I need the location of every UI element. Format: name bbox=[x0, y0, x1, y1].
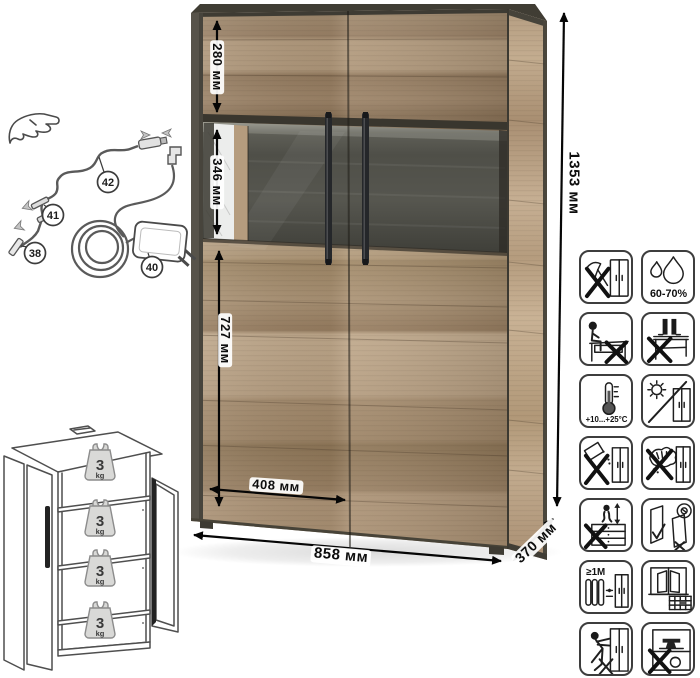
svg-text:kg: kg bbox=[96, 629, 105, 638]
shelf-weight-2: 3 kg bbox=[85, 500, 115, 536]
shelf-weight-4: 3 kg bbox=[85, 602, 115, 638]
svg-text:40: 40 bbox=[146, 262, 158, 274]
led-kit-illustration: 42 41 38 40 bbox=[0, 95, 200, 295]
shelf-weight-3: 3 kg bbox=[85, 550, 115, 586]
furniture-dimension-diagram: 280 мм 346 мм 727 мм 1353 мм 408 мм 858 … bbox=[0, 0, 700, 678]
glass-display-section bbox=[203, 122, 508, 256]
svg-text:kg: kg bbox=[96, 577, 105, 586]
led-driver-box bbox=[70, 426, 95, 434]
dimension-top-section: 280 мм bbox=[210, 40, 224, 94]
cable-coil bbox=[72, 221, 142, 277]
dimension-glass-section: 346 мм bbox=[210, 155, 224, 209]
callout-38: 38 bbox=[21, 243, 46, 264]
wireframe-right-door bbox=[152, 478, 178, 632]
hand-icon bbox=[9, 114, 59, 143]
cabinet-side-panel bbox=[508, 9, 547, 560]
dimension-height: 1353 мм bbox=[565, 148, 582, 217]
svg-text:41: 41 bbox=[47, 210, 59, 222]
callout-42: 42 bbox=[98, 157, 119, 193]
svg-text:kg: kg bbox=[96, 527, 105, 536]
power-adapter bbox=[132, 221, 199, 266]
door-handle-right bbox=[362, 112, 369, 265]
wireframe-left-door bbox=[4, 456, 52, 670]
wireframe-cabinet: 3 kg 3 kg 3 kg 3 kg bbox=[0, 420, 200, 678]
svg-text:42: 42 bbox=[102, 177, 114, 189]
svg-text:38: 38 bbox=[29, 248, 41, 260]
svg-text:kg: kg bbox=[96, 471, 105, 480]
door-handle-left bbox=[325, 112, 332, 265]
callout-41: 41 bbox=[43, 205, 64, 226]
shelf-weight-1: 3 kg bbox=[85, 444, 115, 480]
dimension-bottom-section: 727 мм bbox=[218, 313, 232, 367]
